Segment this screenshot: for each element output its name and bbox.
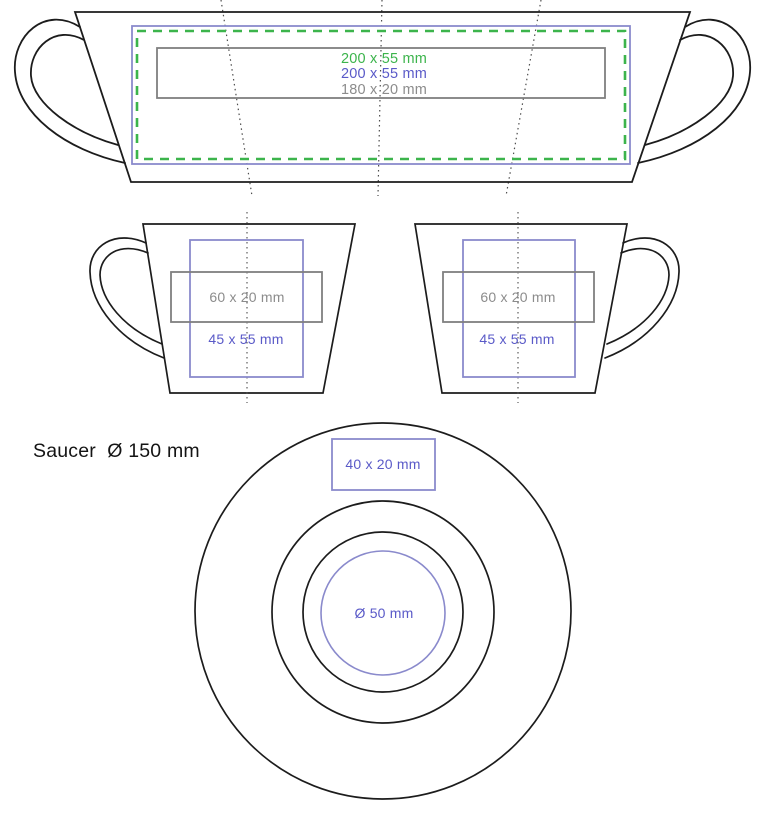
- cup-right-print-area-blue: [463, 240, 575, 377]
- cup-right-gray-area-label: 60 x 20 mm: [480, 290, 555, 306]
- cup-right-blue-area-label: 45 x 55 mm: [479, 332, 554, 348]
- wrap-print-area-blue-label: 200 x 55 mm: [341, 67, 427, 83]
- handle-inner-curve: [31, 35, 118, 145]
- cup-and-saucer-print-template-diagram: 200 x 55 mm 200 x 55 mm 180 x 20 mm 60 x…: [0, 0, 768, 824]
- handle-inner-curve: [100, 249, 162, 344]
- wrap-band-print-area-gray-label: 180 x 20 mm: [341, 83, 427, 99]
- handle-inner-curve: [645, 35, 733, 145]
- cup-right-outline: [415, 224, 627, 393]
- cup-left-view: [90, 224, 355, 393]
- saucer-center-print-area-label: Ø 50 mm: [355, 606, 414, 622]
- handle-inner-curve: [607, 249, 669, 344]
- cup-left-outline: [143, 224, 355, 393]
- cup-right-handle: [605, 238, 679, 358]
- saucer-top-print-area-label: 40 x 20 mm: [345, 457, 420, 473]
- cup-right-view: [415, 224, 679, 393]
- cup-left-blue-area-label: 45 x 55 mm: [208, 332, 283, 348]
- diagram-linework: [0, 0, 768, 824]
- cup-left-handle: [90, 238, 164, 358]
- flattened-cup-right-handle: [638, 20, 750, 163]
- cup-left-gray-area-label: 60 x 20 mm: [209, 290, 284, 306]
- saucer-caption: Saucer Ø 150 mm: [33, 440, 200, 463]
- flattened-cup-left-handle: [15, 20, 125, 163]
